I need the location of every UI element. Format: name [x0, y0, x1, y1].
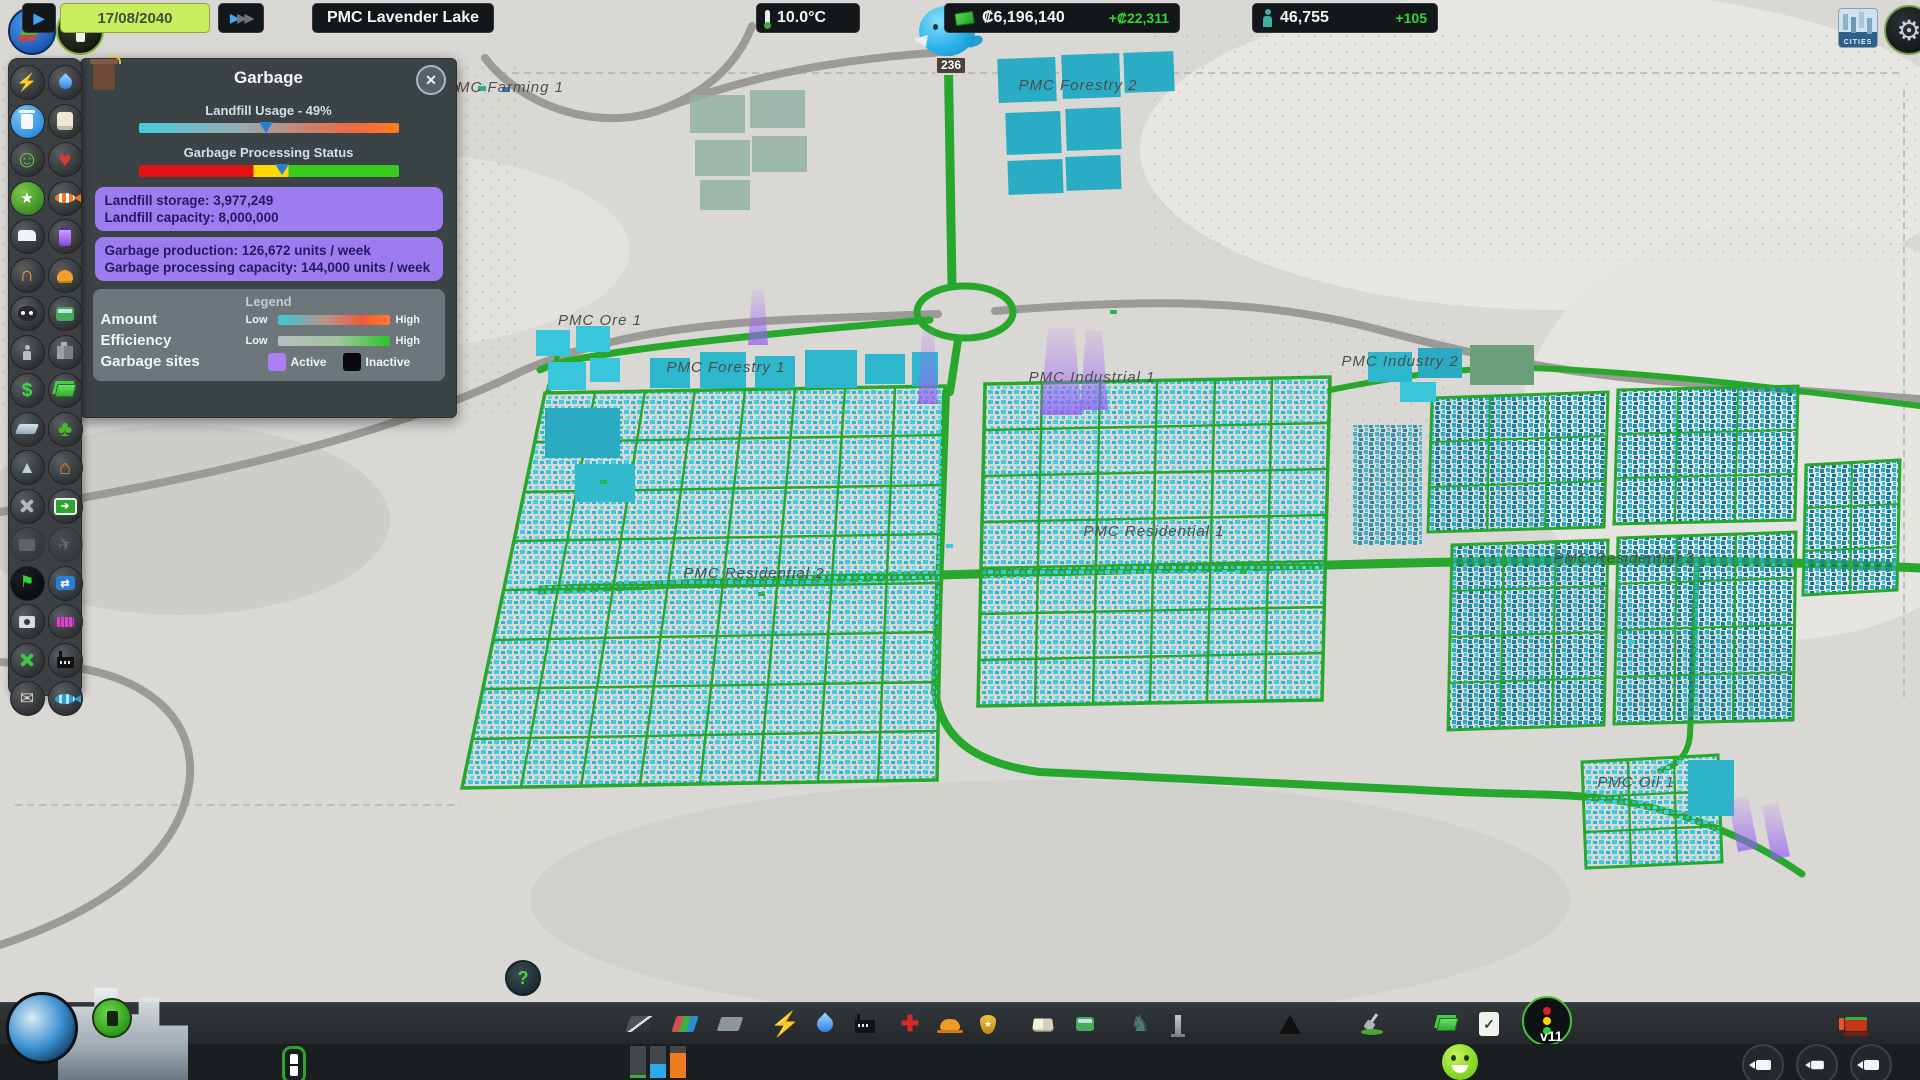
land-value-infoview-icon[interactable]: ★ [10, 181, 45, 216]
lightning-icon: ⚡ [770, 1010, 800, 1039]
help-button[interactable]: ? [505, 960, 541, 996]
mod-mini-button[interactable] [92, 998, 132, 1038]
label-forestry-1: PMC Forestry 1 [666, 359, 785, 376]
population-value: 46,755 [1280, 9, 1329, 27]
banknote-icon [954, 10, 975, 26]
production-stats: Garbage production: 126,672 units / week… [95, 237, 443, 281]
police-button[interactable]: ★ [970, 1007, 1006, 1041]
fishing-industry-infoview-icon[interactable] [48, 681, 83, 716]
active-site-swatch [268, 353, 286, 371]
education-button[interactable] [1025, 1007, 1061, 1041]
city-name: PMC Lavender Lake [312, 3, 494, 33]
post-infoview-icon[interactable]: ✉ [10, 681, 45, 716]
happiness-infoview-icon[interactable]: ☺ [10, 142, 45, 177]
district-oil [1582, 755, 1734, 868]
road-icon [625, 1016, 654, 1032]
landfill-usage-label: Landfill Usage - 49% [81, 103, 456, 118]
industrial-demand-bar [670, 1046, 686, 1078]
outside-connections-infoview-icon[interactable]: ➔ [48, 489, 83, 524]
game-screen: PMC Farming 1 PMC Forestry 2 PMC Ore 1 P… [0, 0, 1920, 1080]
game-date: 17/08/2040 [60, 3, 210, 33]
wonders-button[interactable] [1272, 1007, 1308, 1041]
landfill-capacity: Landfill capacity: 8,000,000 [105, 209, 433, 226]
parks-button[interactable]: ♞ [1122, 1007, 1158, 1041]
districts-button[interactable] [712, 1007, 748, 1041]
water-drop-icon [814, 1013, 837, 1036]
processing-capacity: Garbage processing capacity: 144,000 uni… [105, 259, 433, 276]
economy-button[interactable] [1429, 1007, 1465, 1041]
question-icon: ? [518, 968, 529, 989]
free-camera-button[interactable] [6, 992, 78, 1064]
processing-marker [275, 164, 289, 175]
transport-button[interactable] [1067, 1007, 1103, 1041]
cinematic-camera-button[interactable] [1742, 1044, 1784, 1080]
disaster-helicopter-infoview-icon[interactable]: ✈ [48, 527, 83, 562]
roads-button[interactable] [622, 1007, 658, 1041]
recorder-camera-button[interactable] [1796, 1044, 1838, 1080]
disaster-radio-infoview-icon[interactable] [10, 527, 45, 562]
label-ore-1: PMC Ore 1 [558, 312, 642, 329]
label-forestry-2: PMC Forestry 2 [1018, 77, 1137, 94]
bulldozer-button[interactable] [1838, 1007, 1874, 1041]
medical-cross-icon: ✚ [901, 1013, 919, 1035]
police-badge-icon: ★ [980, 1015, 996, 1034]
industry-infoview-icon[interactable] [48, 643, 83, 678]
record-camera-icon [1811, 1061, 1824, 1070]
gear-icon: ⚙ [1896, 14, 1920, 47]
temperature-value: 10.0°C [777, 9, 826, 27]
tourism-infoview-icon[interactable] [48, 335, 83, 370]
zoning-icon [671, 1016, 698, 1032]
obelisk-icon [1175, 1015, 1181, 1034]
pollution-infoview-icon[interactable] [48, 219, 83, 254]
electricity-infoview-icon[interactable]: ⚡ [10, 65, 45, 100]
legend-title: Legend [101, 294, 437, 309]
landscaping-button[interactable] [1354, 1007, 1390, 1041]
legend-efficiency-label: Efficiency [101, 332, 246, 349]
inactive-site-swatch [343, 353, 361, 371]
camera-icon [1864, 1060, 1879, 1070]
park-maintenance-infoview-icon[interactable]: ♣ [48, 412, 83, 447]
traffic-routes-infoview-icon[interactable]: ⇄ [48, 566, 83, 601]
label-residential-2: PMC Residential 2 [683, 565, 824, 582]
policies-button[interactable]: ✓ [1471, 1007, 1507, 1041]
hotels-infoview-icon[interactable] [48, 604, 83, 639]
thermometer-icon [765, 10, 770, 27]
residential-demand-bar [630, 1046, 646, 1078]
zoning-button[interactable] [667, 1007, 703, 1041]
terrain-infoview-icon[interactable] [10, 412, 45, 447]
efficiency-gradient [278, 336, 390, 346]
label-oil-1: PMC Oil 1 [1597, 774, 1674, 791]
cities-skylines-logo[interactable] [1838, 8, 1878, 48]
label-farming-1: PMC Farming 1 [446, 79, 564, 96]
screenshot-camera-button[interactable] [1850, 1044, 1892, 1080]
speed-control[interactable]: ▶▶▶ [218, 3, 264, 33]
tmpe-version: v11 [1540, 1028, 1563, 1044]
income-infoview-icon[interactable] [48, 373, 83, 408]
limits-icon[interactable] [282, 1046, 306, 1080]
checkbox-icon: ✓ [1479, 1012, 1499, 1036]
buildings-level-infoview-icon[interactable] [48, 104, 83, 139]
economy-infoview-icon[interactable]: $ [10, 373, 45, 408]
garbage-infoview-icon[interactable] [10, 104, 45, 139]
label-residential-1: PMC Residential 1 [1083, 523, 1224, 540]
monuments-button[interactable] [1160, 1007, 1196, 1041]
panel-title: Garbage [234, 68, 303, 88]
main-toolbar: ⚡ ✚ ★ ♞ ✓ [0, 1002, 1920, 1045]
incinerator-icon [855, 1020, 875, 1033]
money-stack-icon [1436, 1018, 1458, 1031]
garbage-button[interactable] [847, 1007, 883, 1041]
chirper-badge: 236 [935, 56, 967, 75]
book-icon [1032, 1018, 1054, 1031]
infoview-sidebar: ⚡ ☺ ♥ ★ ∩ $ ♣ ▲ ⌂ ➔ ✈ ⚑ ⇄ ✉ [8, 58, 82, 696]
statue-icon: ♞ [1130, 1013, 1150, 1035]
rci-demand-meter [630, 1046, 686, 1078]
label-industry-2: PMC Industry 2 [1341, 353, 1458, 370]
processing-status-bar [139, 165, 399, 181]
maintenance-infoview-icon[interactable] [10, 489, 45, 524]
bulldozer-icon [1845, 1017, 1867, 1031]
heating-infoview-icon[interactable]: ⌂ [48, 450, 83, 485]
pyramid-icon [1279, 1015, 1301, 1034]
happiness-smiley-icon[interactable] [1442, 1044, 1478, 1080]
commercial-demand-bar [650, 1046, 666, 1078]
legend-sites-label: Garbage sites [101, 353, 246, 370]
traffic-infoview-icon[interactable]: ⚑ [10, 566, 45, 601]
noise-infoview-icon[interactable]: ∩ [10, 258, 45, 293]
water-button[interactable] [807, 1007, 843, 1041]
funds-value: ₡6,196,140 [982, 9, 1065, 27]
temperature-widget[interactable]: 10.0°C [756, 3, 860, 33]
legend: Legend Amount Low High Efficiency Low Hi… [93, 289, 445, 381]
garbage-production: Garbage production: 126,672 units / week [105, 242, 433, 259]
panel-header[interactable]: Garbage ✕ [81, 59, 456, 97]
garbage-panel: Garbage ✕ Landfill Usage - 49% Garbage P… [80, 58, 457, 418]
healthcare-button[interactable]: ✚ [892, 1007, 928, 1041]
population-widget[interactable]: 46,755 +105 [1252, 3, 1438, 33]
fire-safety-infoview-icon[interactable] [48, 258, 83, 293]
amount-gradient [278, 315, 390, 325]
electricity-button[interactable]: ⚡ [767, 1007, 803, 1041]
fire-helmet-icon [940, 1019, 960, 1030]
industry-maintenance-infoview-icon[interactable] [10, 643, 45, 678]
district-residential-2 [462, 386, 945, 788]
shovel-icon [1361, 1013, 1383, 1035]
video-camera-icon [1756, 1060, 1771, 1070]
play-pause-button[interactable]: ▶ [22, 3, 56, 33]
water-infoview-icon[interactable] [48, 65, 83, 100]
population-infoview-icon[interactable] [10, 335, 45, 370]
deathcare-infoview-icon[interactable] [10, 219, 45, 254]
person-icon [1263, 16, 1272, 27]
label-industrial-1: PMC Industrial 1 [1029, 369, 1156, 386]
close-icon[interactable]: ✕ [416, 65, 446, 95]
bus-icon [1076, 1017, 1094, 1031]
funds-delta: +₡22,311 [1109, 10, 1169, 26]
district-icon [717, 1017, 744, 1031]
garbage-bin-icon [93, 64, 115, 90]
label-residential-3: PMC Residential 3 [1553, 550, 1694, 567]
fire-department-button[interactable] [932, 1007, 968, 1041]
processing-status-label: Garbage Processing Status [81, 145, 456, 160]
crime-infoview-icon[interactable] [10, 296, 45, 331]
resources-infoview-icon[interactable]: ▲ [10, 450, 45, 485]
population-delta: +105 [1395, 10, 1427, 26]
traffic-light-icon [1543, 1007, 1551, 1015]
landfill-stats: Landfill storage: 3,977,249 Landfill cap… [95, 187, 443, 231]
transport-infoview-icon[interactable] [48, 296, 83, 331]
funds-widget[interactable]: ₡6,196,140 +₡22,311 [944, 3, 1180, 33]
landfill-storage: Landfill storage: 3,977,249 [105, 192, 433, 209]
landfill-usage-bar [139, 123, 399, 139]
district-industrial-residential [978, 377, 1330, 706]
legend-amount-label: Amount [101, 311, 246, 328]
fishing-infoview-icon[interactable] [48, 181, 83, 216]
entertainment-infoview-icon[interactable] [10, 604, 45, 639]
health-infoview-icon[interactable]: ♥ [48, 142, 83, 177]
usage-marker [259, 122, 273, 133]
